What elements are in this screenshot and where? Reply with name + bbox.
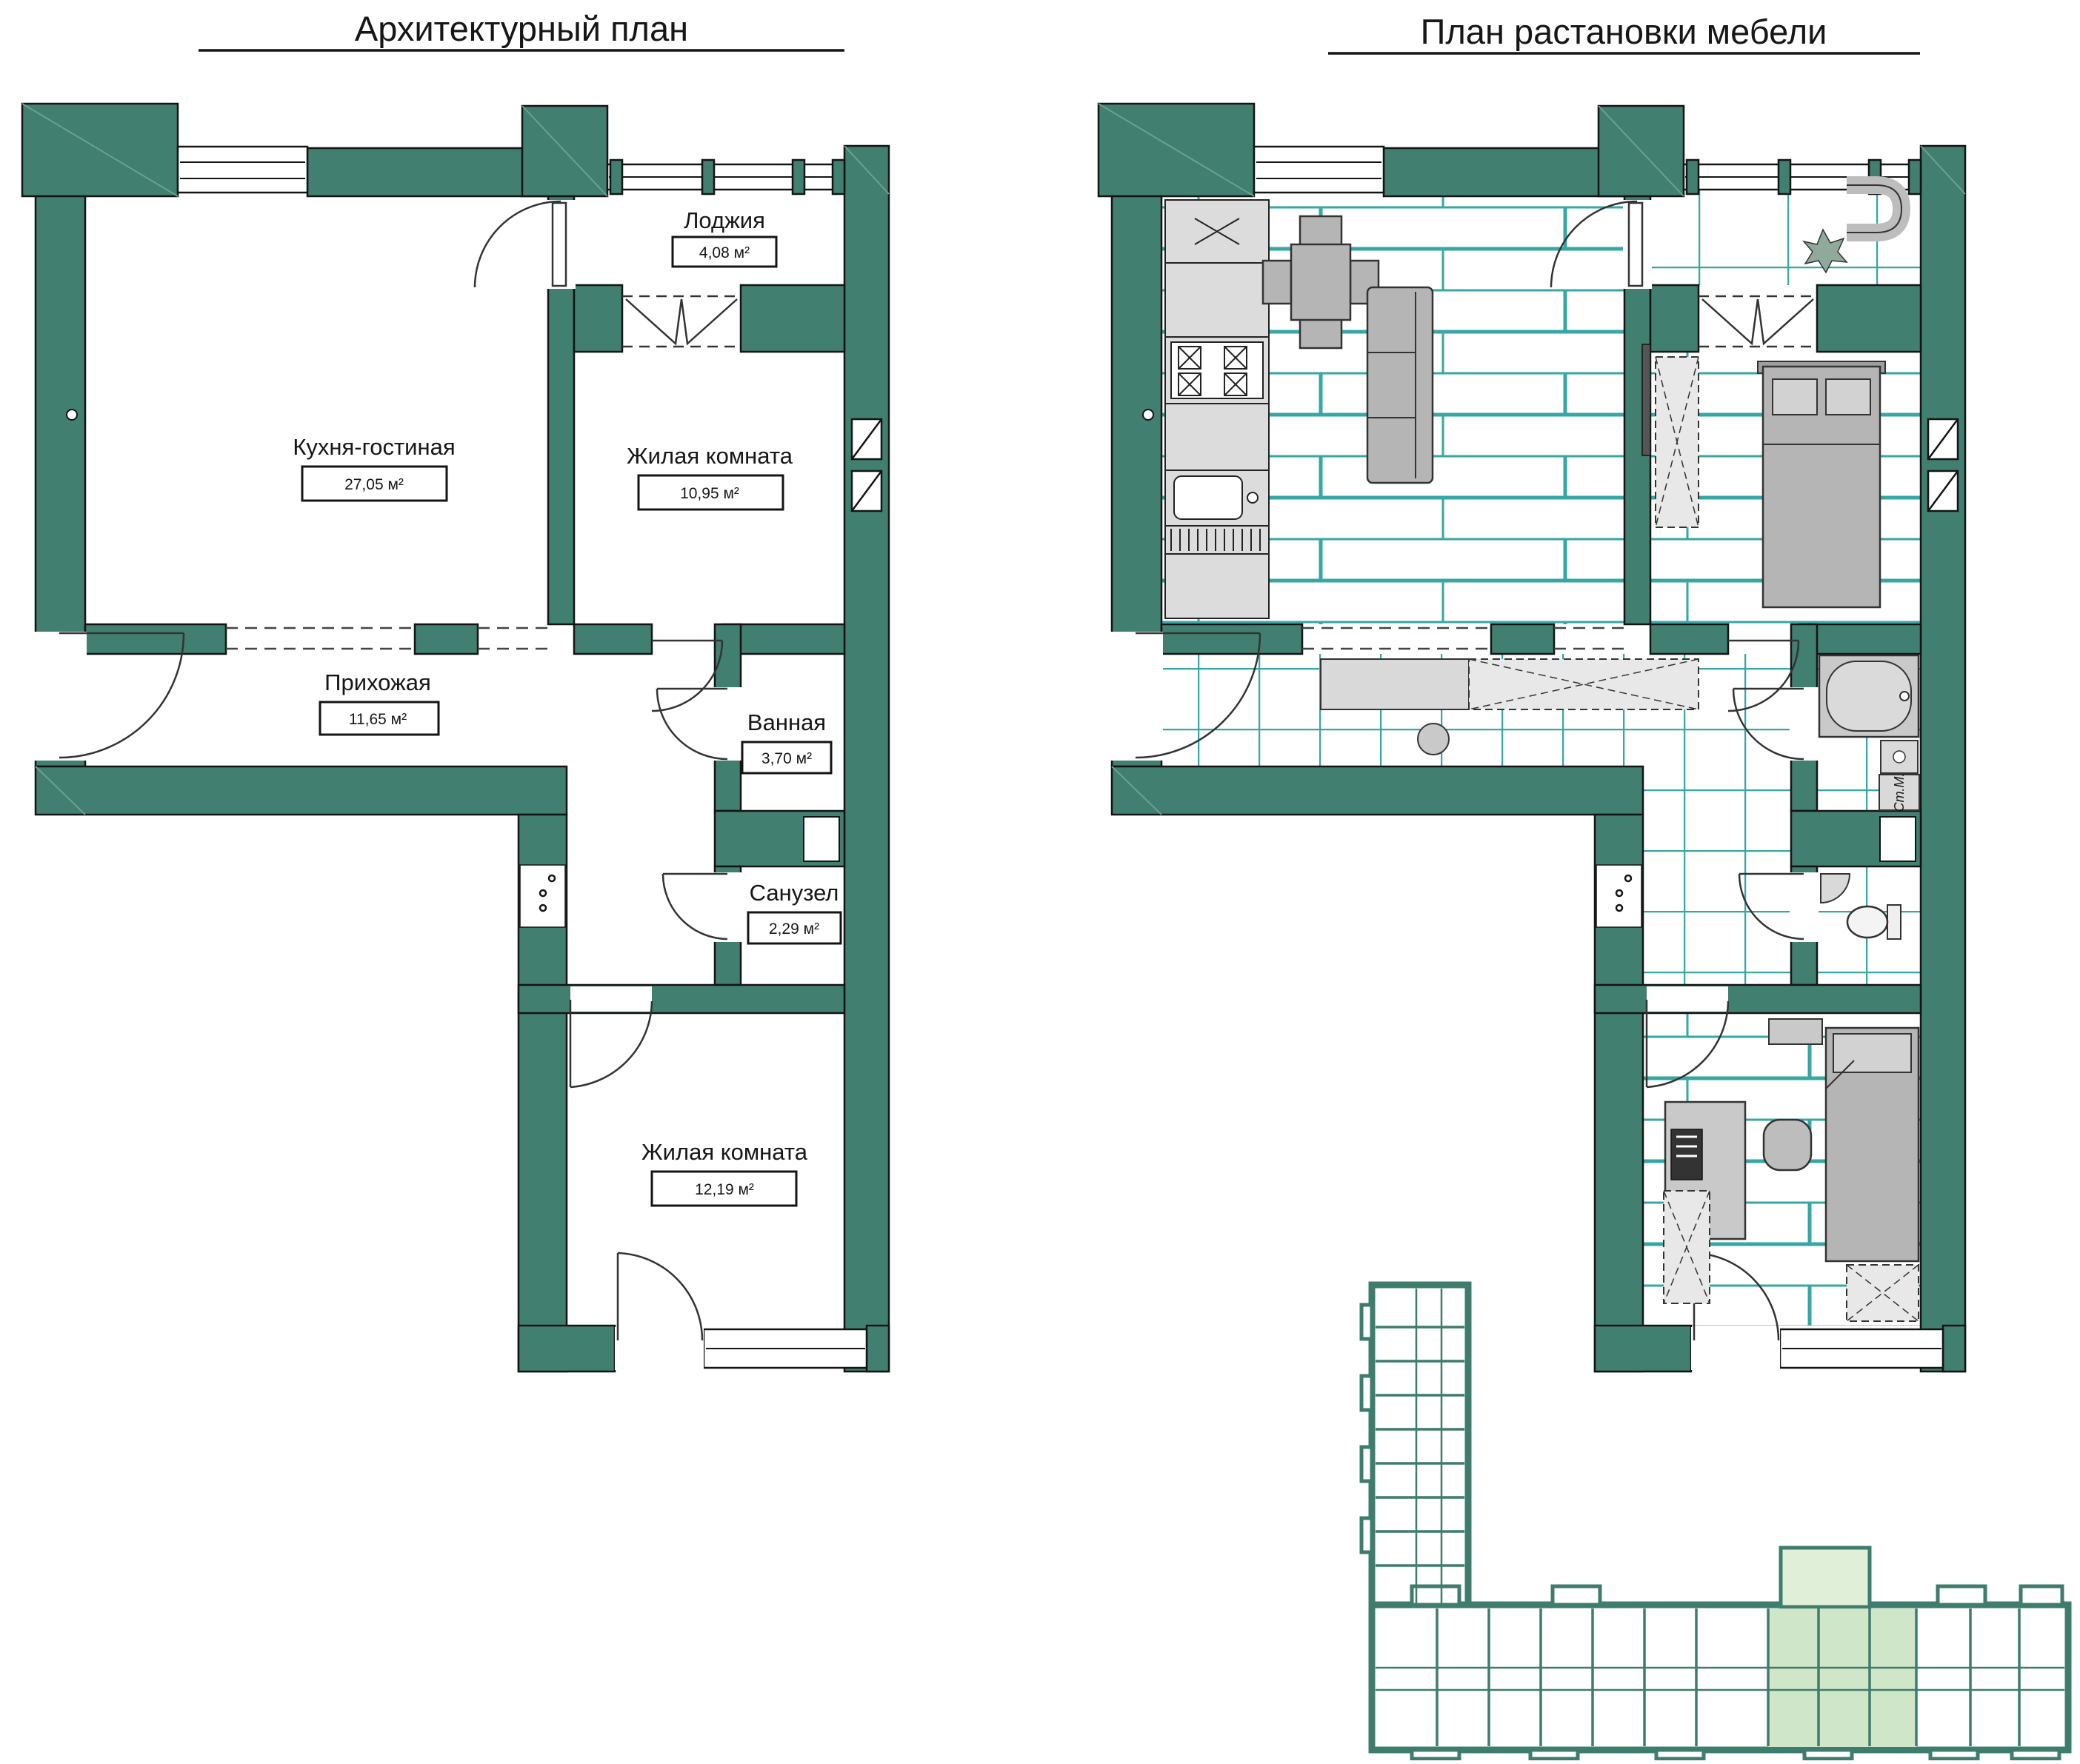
room-label-hallway: Прихожая 11,65 м² <box>320 669 439 735</box>
svg-text:Ванная: Ванная <box>747 709 826 735</box>
architectural-plan: Лоджия 4,08 м² Кухня-гостиная 27,05 м² Ж… <box>22 104 889 1372</box>
svg-text:4,08 м²: 4,08 м² <box>699 244 750 261</box>
svg-text:3,70 м²: 3,70 м² <box>761 750 812 767</box>
building-wing-vertical <box>1372 1285 1468 1609</box>
svg-text:Кухня-гостиная: Кухня-гостиная <box>293 434 455 460</box>
wardrobe-bedroom <box>1656 357 1699 527</box>
desk-chair <box>1764 1120 1811 1170</box>
room-label-kitchen-living: Кухня-гостиная 27,05 м² <box>293 434 455 501</box>
stove <box>1165 337 1269 404</box>
bathroom-sink <box>1881 741 1918 773</box>
wardrobe-bottom-left <box>1664 1191 1710 1303</box>
floorplan-canvas: Архитектурный план План растановки мебел… <box>0 0 2080 1760</box>
svg-text:Санузел: Санузел <box>750 880 839 906</box>
room-label-bathroom: Ванная 3,70 м² <box>742 709 831 773</box>
svg-text:12,19 м²: 12,19 м² <box>695 1181 754 1198</box>
sheet-titles: Архитектурный план План растановки мебел… <box>199 9 1920 53</box>
furniture-plan: Ст.М. <box>1099 104 1965 1372</box>
washing-machine: Ст.М. <box>1879 773 1919 812</box>
room-label-loggia: Лоджия 4,08 м² <box>673 207 776 267</box>
svg-text:Прихожая: Прихожая <box>324 669 431 695</box>
highlighted-apartment <box>1768 1608 1916 1747</box>
room-label-wc: Санузел 2,29 м² <box>748 880 841 943</box>
kitchen-sink <box>1165 470 1269 526</box>
svg-text:2,29 м²: 2,29 м² <box>769 921 819 938</box>
hallway-wardrobe <box>1321 659 1699 709</box>
room-label-bedroom-top: Жилая комната 10,95 м² <box>627 443 793 510</box>
single-bed <box>1826 1028 1919 1261</box>
svg-text:11,65 м²: 11,65 м² <box>349 711 407 728</box>
tv <box>1642 344 1650 455</box>
right-plan-title: План растановки мебели <box>1421 12 1827 51</box>
dresser <box>1769 1019 1822 1044</box>
dishwasher <box>1165 526 1269 554</box>
svg-text:27,05 м²: 27,05 м² <box>344 476 404 493</box>
stool <box>1418 724 1449 755</box>
wardrobe-bottom-right <box>1847 1265 1919 1321</box>
svg-text:Лоджия: Лоджия <box>684 207 765 233</box>
building-wing-horizontal <box>1372 1605 2068 1750</box>
toilet <box>1847 905 1901 939</box>
double-bed <box>1758 361 1885 607</box>
svg-text:Ст.М.: Ст.М. <box>1892 773 1907 812</box>
room-label-bedroom-bottom: Жилая комната 12,19 м² <box>641 1139 808 1206</box>
highlighted-apartment-loggia <box>1781 1548 1870 1607</box>
floorplan-sheet: Архитектурный план План растановки мебел… <box>0 0 2080 1760</box>
svg-text:Жилая комната: Жилая комната <box>627 443 793 469</box>
left-plan-title: Архитектурный план <box>355 9 688 48</box>
svg-text:10,95 м²: 10,95 м² <box>680 485 739 502</box>
bathtub <box>1819 655 1919 737</box>
kitchen-counter <box>1165 200 1269 618</box>
svg-text:Жилая комната: Жилая комната <box>641 1139 808 1165</box>
sofa <box>1367 287 1433 483</box>
